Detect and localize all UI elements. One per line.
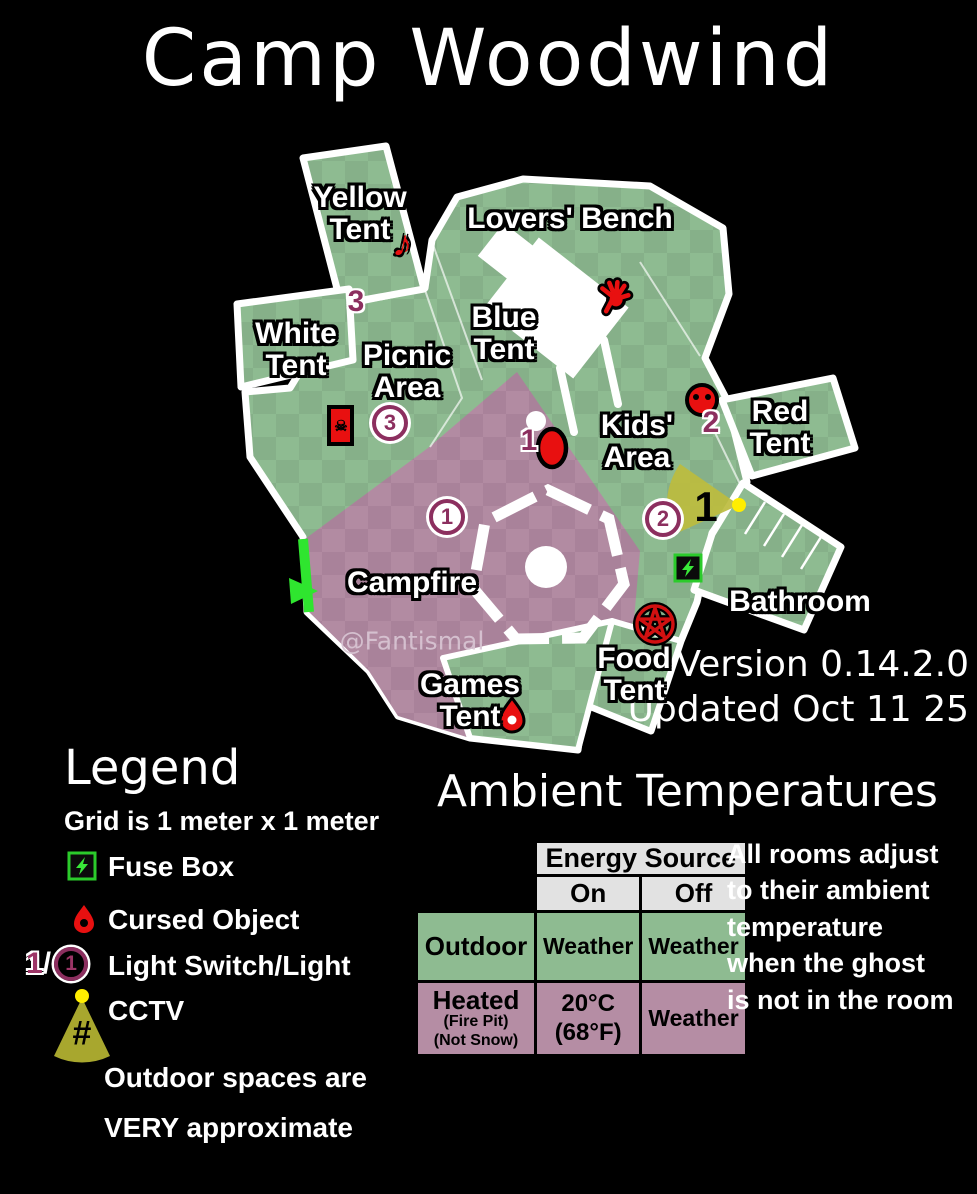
table-corner-empty xyxy=(417,842,536,876)
legend-grid-note: Grid is 1 meter x 1 meter xyxy=(64,806,379,837)
table-corner-empty2 xyxy=(417,876,536,912)
tarot-skull-glyph: ☠ xyxy=(334,417,347,435)
light-3: 3 xyxy=(372,405,408,441)
light-switch-3: 3 xyxy=(348,285,365,319)
heated-title: Heated xyxy=(424,987,528,1013)
label-bathroom: Bathroom xyxy=(729,586,871,618)
light-2: 2 xyxy=(645,501,681,537)
row-header-heated: Heated (Fire Pit) (Not Snow) xyxy=(417,982,536,1056)
cell-outdoor-on: Weather xyxy=(536,912,641,982)
heated-sub2: (Not Snow) xyxy=(424,1032,528,1050)
ambient-note: All rooms adjust to their ambient temper… xyxy=(727,836,977,1018)
legend-fuse-box-icon xyxy=(69,853,95,879)
legend-cursed-object-icon xyxy=(74,905,94,933)
label-kids-area: Kids' Area xyxy=(601,410,673,474)
label-white-tent: White Tent xyxy=(255,318,337,382)
label-red-tent: Red Tent xyxy=(749,396,810,460)
legend-cctv-label: CCTV xyxy=(108,995,184,1027)
ambient-temperature-table: Energy Source On Off Outdoor Weather Wea… xyxy=(415,840,748,1057)
watermark: @Fantismal xyxy=(340,627,485,656)
cctv-number: 1 xyxy=(694,483,717,531)
haunted-mirror-icon xyxy=(538,429,566,467)
label-food-tent: Food Tent xyxy=(597,643,670,707)
legend-light-sample: 1 xyxy=(54,947,88,981)
energy-source-header: Energy Source xyxy=(536,842,747,876)
legend-cctv-hash: # xyxy=(73,1015,92,1054)
heated-sub1: (Fire Pit) xyxy=(424,1013,528,1031)
row-header-outdoor: Outdoor xyxy=(417,912,536,982)
ambient-heading: Ambient Temperatures xyxy=(437,766,938,817)
version-date: Updated Oct 11 25 xyxy=(628,687,969,732)
legend-switch-sample: 1 xyxy=(26,947,43,981)
version-number: Version 0.14.2.0 xyxy=(628,642,969,687)
camp-woodwind-infographic: Camp Woodwind Version 0.14.2.0 Updated O… xyxy=(0,0,977,1194)
fuse-box-icon xyxy=(675,555,701,581)
cell-heated-on: 20°C (68°F) xyxy=(536,982,641,1056)
light-switch-2: 2 xyxy=(703,406,720,440)
legend-cursed-label: Cursed Object xyxy=(108,904,299,936)
label-yellow-tent: Yellow Tent xyxy=(313,182,406,246)
legend-light-prefix: 1 / 1 xyxy=(26,947,88,981)
legend-fuse-label: Fuse Box xyxy=(108,851,234,883)
label-games-tent: Games Tent xyxy=(420,669,520,733)
legend-note-2: VERY approximate xyxy=(104,1112,353,1144)
legend-heading: Legend xyxy=(64,740,240,796)
col-header-on: On xyxy=(536,876,641,912)
light-switch-1: 1 xyxy=(521,424,538,458)
entrance-line xyxy=(303,539,309,612)
page-title: Camp Woodwind xyxy=(0,14,977,104)
label-campfire: Campfire xyxy=(347,567,477,599)
light-1: 1 xyxy=(429,499,465,535)
legend-light-label: Light Switch/Light xyxy=(108,950,351,982)
legend-note-1: Outdoor spaces are xyxy=(104,1062,367,1094)
label-picnic-area: Picnic Area xyxy=(363,340,451,404)
legend-slash: / xyxy=(43,947,51,981)
fire-pit xyxy=(525,546,567,588)
version-info: Version 0.14.2.0 Updated Oct 11 25 xyxy=(628,642,969,732)
label-blue-tent: Blue Tent xyxy=(471,302,536,366)
label-lovers-bench: Lovers' Bench xyxy=(467,203,673,235)
